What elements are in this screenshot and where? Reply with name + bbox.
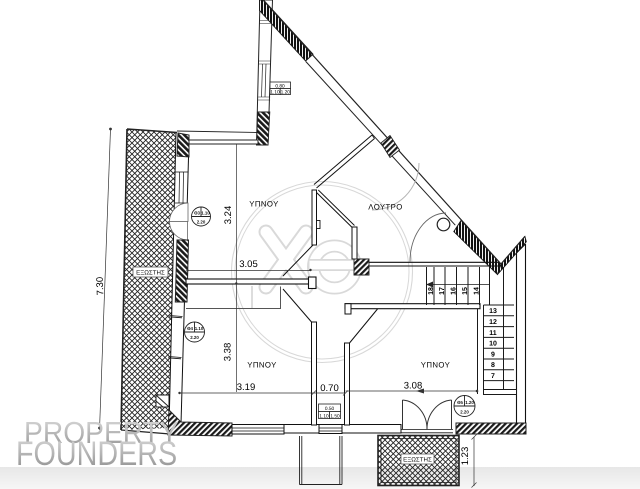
- svg-text:Θ3: Θ3: [194, 211, 200, 216]
- svg-text:9: 9: [491, 352, 495, 359]
- svg-text:Θ4: Θ4: [187, 326, 193, 331]
- svg-text:2.20: 2.20: [460, 410, 469, 415]
- svg-text:ΥΠΝΟΥ: ΥΠΝΟΥ: [249, 200, 279, 209]
- svg-text:ΛΟΥΤΡΟ: ΛΟΥΤΡΟ: [368, 203, 403, 212]
- svg-text:3.05: 3.05: [239, 259, 258, 270]
- svg-text:12: 12: [489, 319, 497, 326]
- svg-text:15: 15: [462, 287, 469, 295]
- svg-text:ΥΠΝΟΥ: ΥΠΝΟΥ: [247, 361, 277, 370]
- svg-text:0.80: 0.80: [275, 83, 285, 89]
- svg-text:3.24: 3.24: [223, 206, 234, 225]
- svg-text:ΕΞΩΣΤΗΣ: ΕΞΩΣΤΗΣ: [136, 270, 165, 277]
- svg-text:13: 13: [489, 308, 497, 315]
- svg-text:3.08: 3.08: [404, 381, 423, 392]
- svg-text:7: 7: [491, 373, 495, 380]
- svg-text:18: 18: [428, 287, 435, 295]
- svg-text:8: 8: [491, 362, 495, 369]
- svg-text:1.10: 1.10: [195, 326, 204, 331]
- svg-text:2.20: 2.20: [190, 335, 199, 340]
- svg-text:1.10: 1.10: [319, 413, 329, 419]
- svg-text:10: 10: [489, 341, 497, 348]
- svg-text:0.50: 0.50: [325, 406, 335, 412]
- svg-text:1.10: 1.10: [201, 211, 210, 216]
- svg-text:0.70: 0.70: [320, 383, 339, 394]
- svg-text:3.19: 3.19: [237, 382, 256, 393]
- svg-text:1.20: 1.20: [465, 400, 474, 405]
- svg-text:1.23: 1.23: [460, 447, 471, 466]
- svg-text:1.50: 1.50: [330, 413, 340, 419]
- svg-text:14: 14: [474, 287, 481, 295]
- svg-text:11: 11: [489, 330, 497, 337]
- svg-text:7.30: 7.30: [95, 277, 107, 296]
- svg-text:Θ5: Θ5: [457, 400, 463, 405]
- svg-text:1.20: 1.20: [281, 90, 291, 96]
- svg-text:16: 16: [451, 287, 458, 295]
- svg-text:1.10: 1.10: [270, 90, 280, 96]
- svg-text:3.38: 3.38: [223, 343, 234, 362]
- svg-text:ΕΞΩΣΤΗΣ: ΕΞΩΣΤΗΣ: [403, 457, 432, 464]
- svg-text:17: 17: [439, 287, 446, 295]
- svg-text:ΥΠΝΟΥ: ΥΠΝΟΥ: [421, 361, 451, 370]
- svg-text:2.20: 2.20: [197, 220, 206, 225]
